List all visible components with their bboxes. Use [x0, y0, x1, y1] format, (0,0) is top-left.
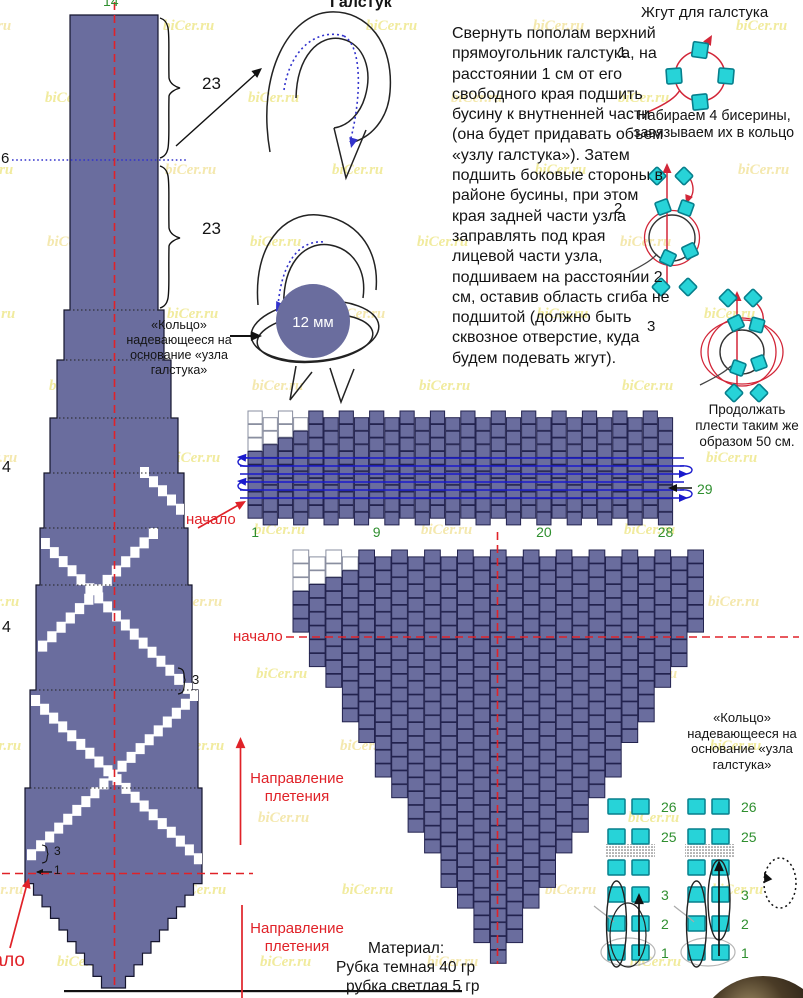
ring-row-label: 2 — [661, 916, 669, 932]
direction-label-upper: Направлениеплетения — [246, 770, 348, 806]
ring-row-label: 3 — [741, 887, 749, 903]
band-row-label-29: 29 — [697, 481, 713, 497]
tie-bottom-count-3: 3 — [54, 844, 61, 858]
ring-row-label: 26 — [741, 799, 757, 815]
direction-line2: плетения — [265, 938, 330, 955]
band-column-label: 9 — [373, 524, 381, 540]
tie-segment-23-top: 23 — [202, 74, 221, 94]
ring-row-label: 25 — [661, 829, 677, 845]
materials-title: Материал: — [368, 940, 444, 959]
cord-step3-number: 3 — [647, 318, 655, 336]
direction-label-lower: Направлениеплетения — [246, 920, 348, 956]
tie-left-count-6: 6 — [1, 150, 9, 168]
materials-line1: Рубка темная 40 гр — [336, 959, 475, 978]
direction-line1: Направление — [250, 920, 344, 937]
cord-pickup-note: Набираем 4 бисерины, завязываем их в кол… — [624, 108, 803, 142]
ring-row-label: 25 — [741, 829, 757, 845]
tie-mid-count-3: 3 — [192, 672, 199, 688]
cord-continue-note: Продолжать плести таким же образом 50 см… — [689, 402, 803, 451]
band-column-label: 1 — [251, 524, 259, 540]
ring-row-label: 2 — [741, 916, 749, 932]
cord-step1-number: 1 — [618, 44, 626, 62]
pattern-page: biCer.rubiCer.rubiCer.rubiCer.rubiCer.ru… — [0, 0, 803, 998]
band-column-label: 28 — [658, 524, 674, 540]
ring-row-label: 3 — [661, 887, 669, 903]
cord-step2-number: 2 — [614, 200, 622, 218]
ring-chart: 26253212625321 — [594, 799, 803, 998]
bead-size-label: 12 мм — [292, 314, 333, 331]
direction-line2: плетения — [265, 788, 330, 805]
cord-title: Жгут для галстука — [641, 4, 768, 22]
tie-start-label: начало — [0, 950, 25, 973]
ring-row-label: 1 — [661, 945, 669, 961]
triangle-start-label: начало — [233, 628, 283, 646]
tie-segment-23-bottom: 23 — [202, 219, 221, 239]
diagram-art: 12 мм 19202829 26253212625321 — [0, 0, 803, 998]
ring-note-right: «Кольцо» надевающееся на основание «узла… — [680, 710, 803, 772]
tie-top-count: 14 — [103, 0, 119, 10]
tie-bottom-count-1: 1 — [54, 863, 61, 877]
tie-left-count-4a: 4 — [2, 458, 11, 477]
band-chart: 19202829 — [198, 411, 713, 540]
page-title: Галстук — [330, 0, 392, 12]
ring-row-label: 26 — [661, 799, 677, 815]
band-column-label: 20 — [536, 524, 552, 540]
ring-note-left: «Кольцо» надевающееся на основание «узла… — [116, 318, 242, 378]
ring-row-label: 1 — [741, 945, 749, 961]
band-start-label: начало — [186, 511, 236, 529]
direction-line1: Направление — [250, 770, 344, 787]
instruction-text: Свернуть пополам верхний прямоугольник г… — [452, 24, 670, 369]
tie-left-count-4b: 4 — [2, 618, 11, 637]
materials-line2: рубка светлая 5 гр — [346, 978, 480, 997]
